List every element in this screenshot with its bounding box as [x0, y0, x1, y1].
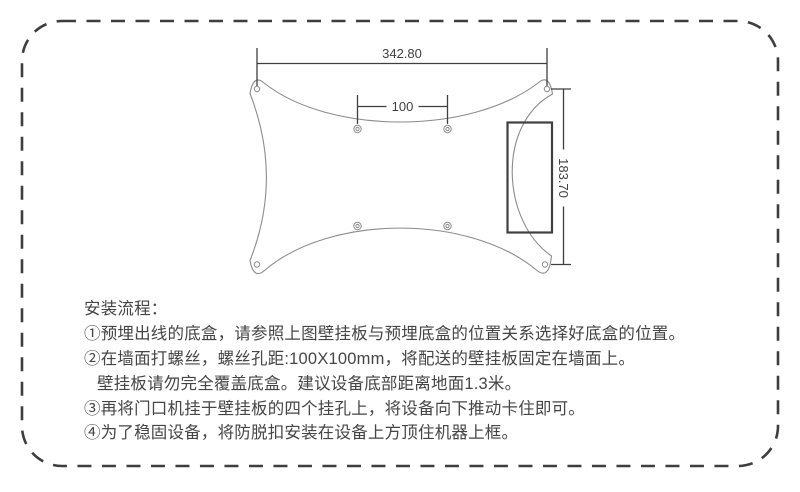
- instruction-step-4: ④为了稳固设备，将防脱扣安装在设备上方顶住机器上框。: [84, 421, 685, 446]
- instruction-step-1: ①预埋出线的底盒，请参照上图壁挂板与预埋底盒的位置关系选择好底盒的位置。: [84, 322, 685, 347]
- installation-instructions: 安装流程： ①预埋出线的底盒，请参照上图壁挂板与预埋底盒的位置关系选择好底盒的位…: [84, 297, 685, 446]
- hang-hole-bottom-right: [542, 262, 547, 267]
- screw-hole-top-right: [444, 125, 451, 132]
- instructions-heading: 安装流程：: [84, 297, 685, 322]
- junction-box-outline: [508, 123, 553, 233]
- hang-hole-top-right: [544, 86, 549, 91]
- screw-hole-bottom-right: [444, 222, 451, 229]
- hang-hole-bottom-left: [254, 262, 259, 267]
- screw-hole-top-left: [354, 125, 361, 132]
- screw-hole-bottom-left: [354, 222, 361, 229]
- instruction-step-2-continued: 壁挂板请勿完全覆盖底盒。建议设备底部距离地面1.3米。: [84, 372, 685, 397]
- dimension-height-label: 183.70: [556, 158, 571, 198]
- screw-holes-100x100: [354, 125, 451, 229]
- dimension-hole-spacing-label: 100: [392, 99, 414, 114]
- installation-manual-page: 342.80 100 183.70 安装流程： ①预埋出线的底盒，请参照上图壁挂…: [0, 0, 800, 492]
- instruction-step-2: ②在墙面打螺丝，螺丝孔距:100X100mm，将配送的壁挂板固定在墙面上。: [84, 347, 685, 372]
- hang-hole-top-left: [254, 86, 259, 91]
- instruction-step-3: ③再将门口机挂于壁挂板的四个挂孔上，将设备向下推动卡住即可。: [84, 397, 685, 422]
- dimension-width-label: 342.80: [382, 46, 422, 61]
